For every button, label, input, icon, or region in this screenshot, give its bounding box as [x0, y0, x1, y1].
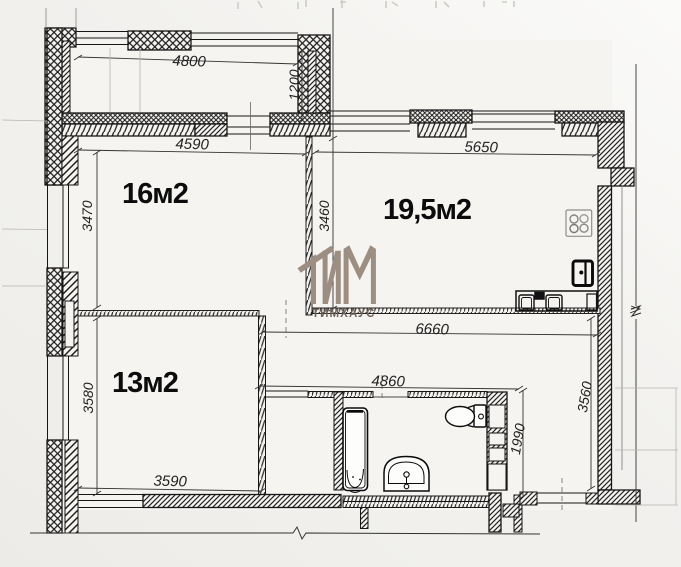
svg-text:5650: 5650	[464, 139, 498, 157]
svg-text:16м2: 16м2	[122, 178, 188, 210]
svg-text:1200: 1200	[286, 69, 302, 100]
svg-text:3580: 3580	[80, 382, 96, 413]
svg-text:19,5м2: 19,5м2	[383, 194, 471, 226]
svg-text:4800: 4800	[172, 52, 207, 70]
svg-text:4860: 4860	[371, 373, 405, 391]
svg-text:3590: 3590	[153, 473, 187, 491]
svg-text:13м2: 13м2	[112, 367, 178, 399]
svg-text:4590: 4590	[175, 136, 209, 154]
svg-text:3470: 3470	[79, 200, 95, 231]
svg-text:3460: 3460	[316, 200, 332, 231]
svg-text:ТИМХАУС: ТИМХАУС	[312, 308, 376, 320]
svg-text:6660: 6660	[415, 321, 449, 339]
